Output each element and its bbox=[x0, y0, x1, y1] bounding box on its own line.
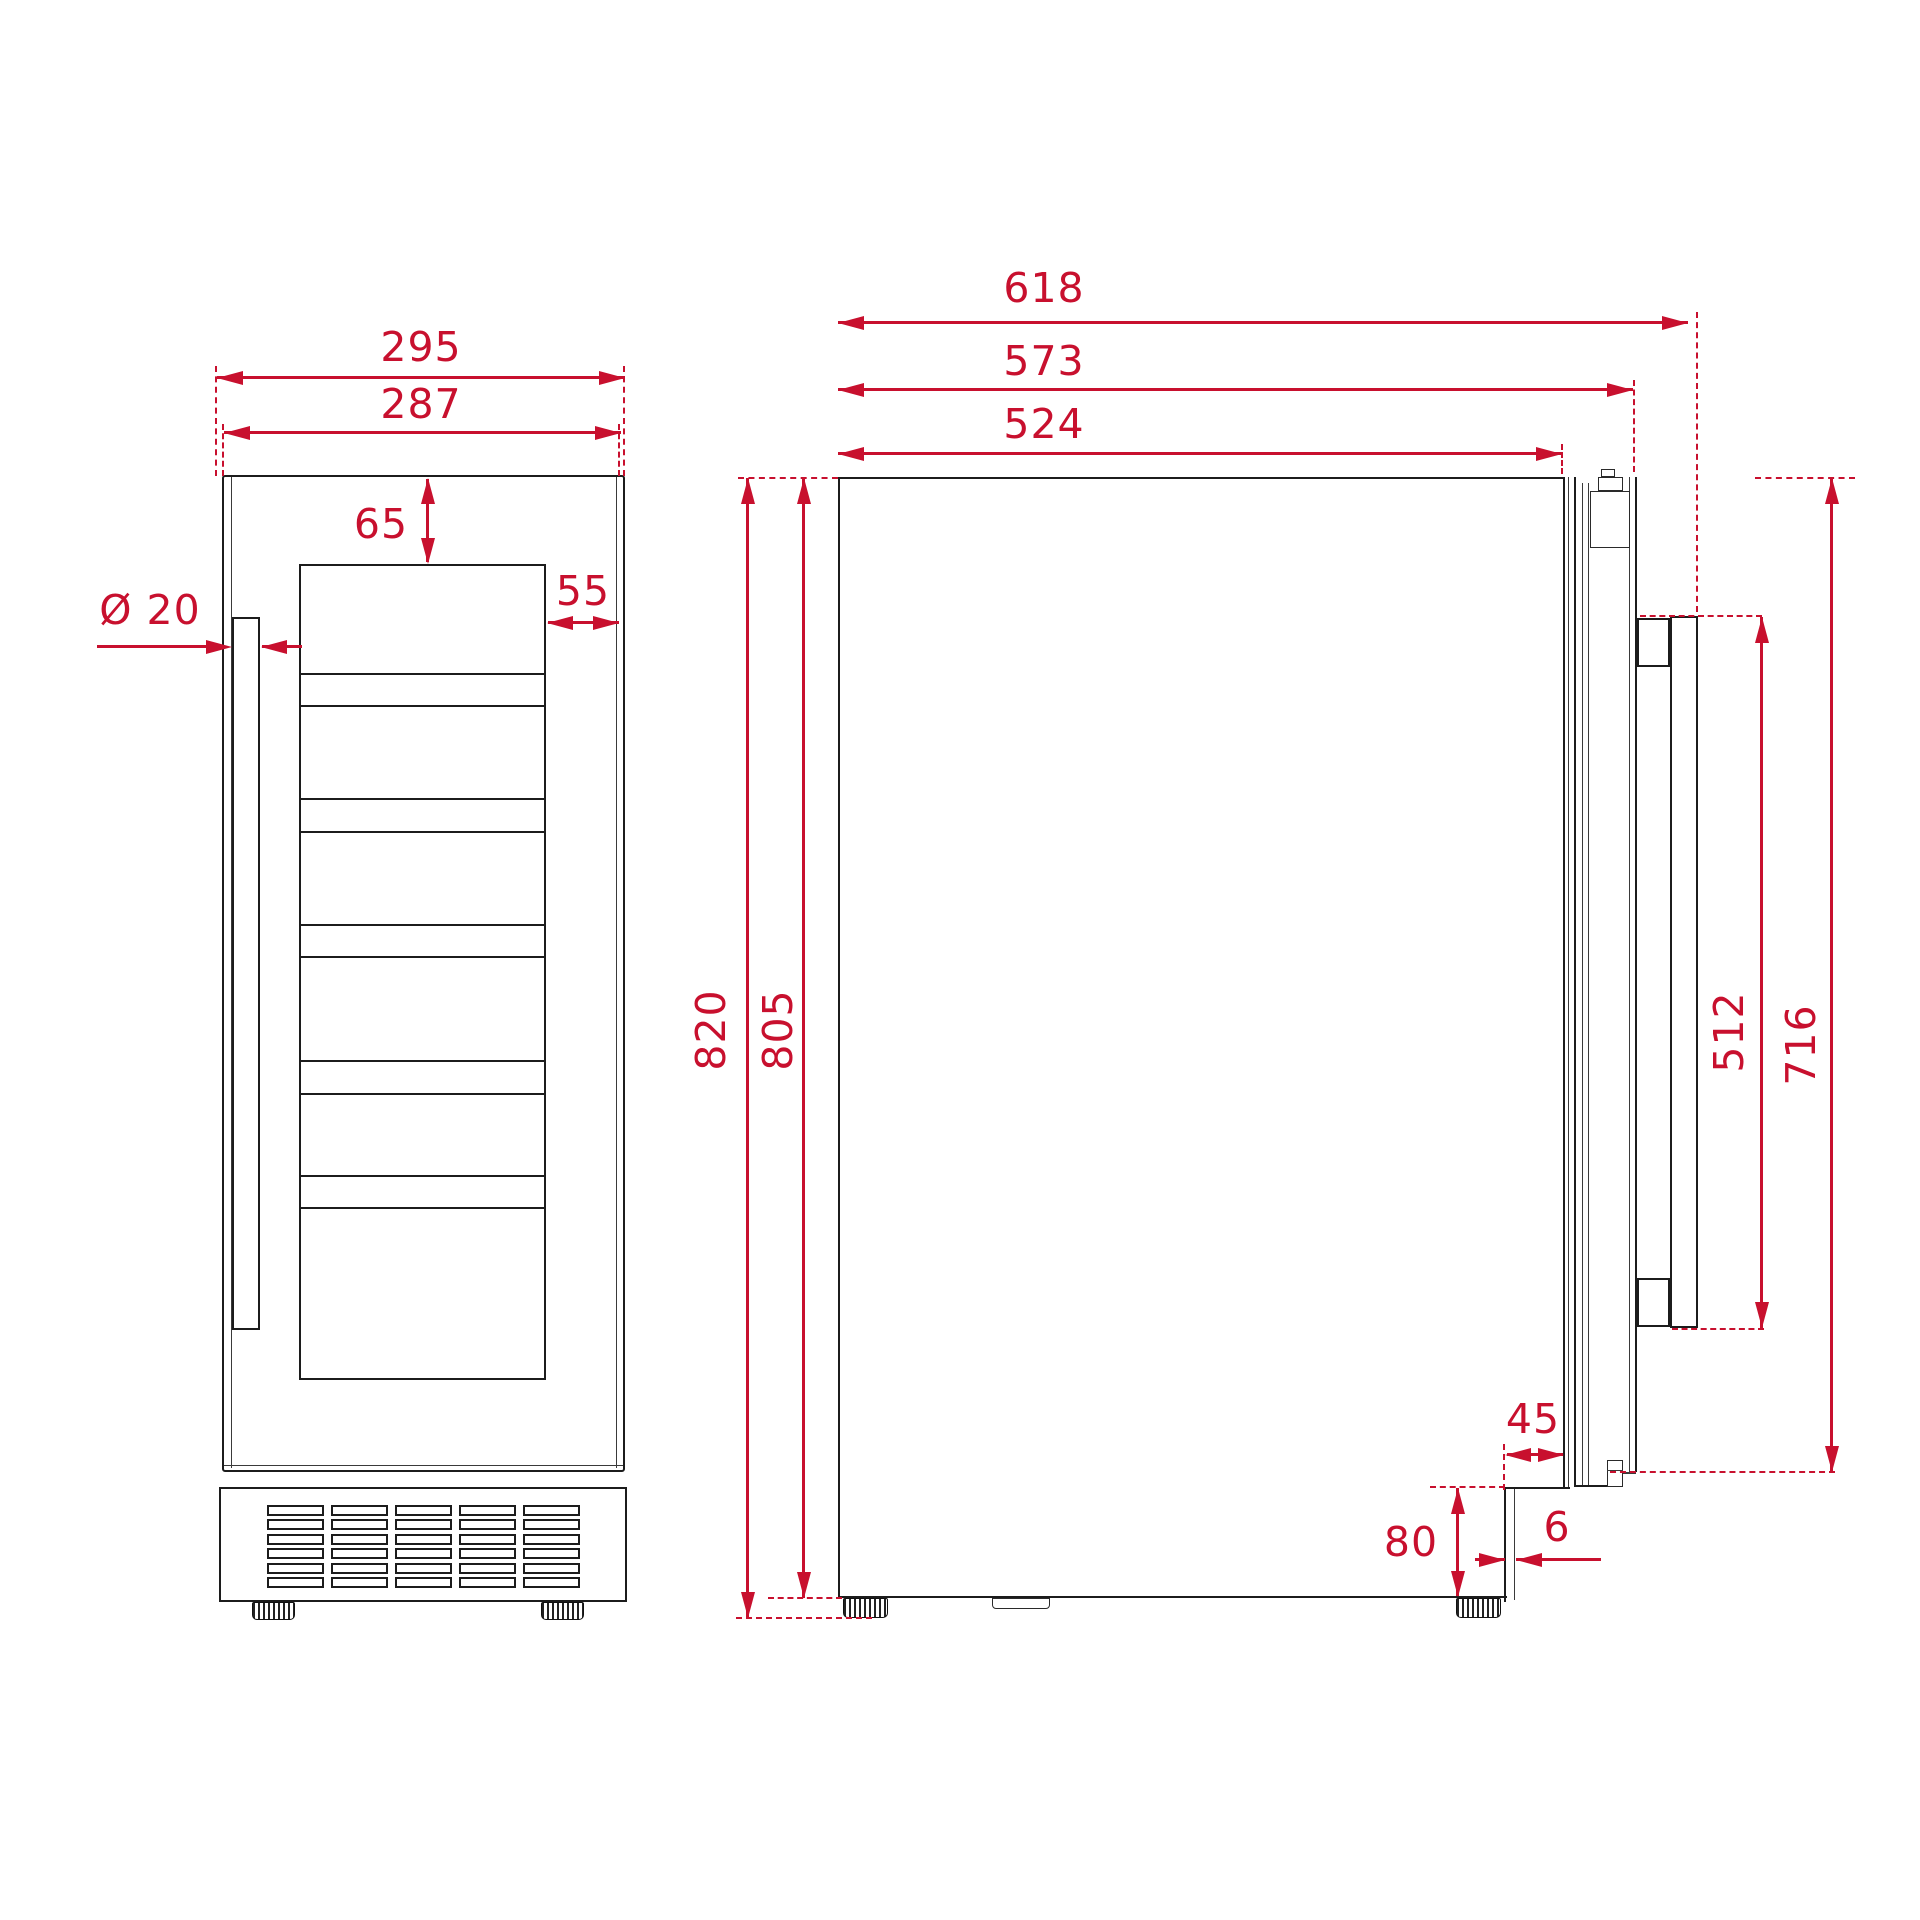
arrow-icon bbox=[421, 478, 435, 504]
dim-label-niche-width: 295 bbox=[380, 323, 461, 371]
arrow-icon bbox=[1755, 1302, 1769, 1328]
door-front-face-inner bbox=[1629, 477, 1630, 1472]
arrow-icon bbox=[838, 447, 864, 461]
dim-label-side-clearance: 55 bbox=[556, 567, 610, 615]
extension-line bbox=[215, 366, 217, 476]
vent-slot bbox=[395, 1563, 452, 1574]
bottom-bracket bbox=[992, 1598, 1050, 1609]
extension-line bbox=[618, 424, 620, 476]
vent-slot bbox=[331, 1577, 388, 1588]
handle-bracket-top bbox=[1637, 618, 1670, 667]
dim-label-door-height: 716 bbox=[1777, 1004, 1825, 1085]
arrow-icon bbox=[1479, 1553, 1505, 1567]
arrow-icon bbox=[1825, 1446, 1839, 1472]
vent-slot bbox=[459, 1534, 516, 1545]
door-handle bbox=[232, 617, 260, 1330]
dim-label-handle-length: 512 bbox=[1705, 991, 1753, 1072]
vent-slot bbox=[523, 1563, 580, 1574]
dim-line-door-height bbox=[1830, 478, 1833, 1472]
shelf bbox=[299, 924, 546, 958]
dim-line-handle-dia bbox=[97, 645, 207, 648]
vent-slot bbox=[267, 1563, 324, 1574]
arrow-icon bbox=[1825, 478, 1839, 504]
dim-line-body-height bbox=[802, 478, 805, 1598]
arrow-icon bbox=[261, 640, 287, 654]
extension-line bbox=[1561, 444, 1563, 474]
dim-line-body-depth bbox=[838, 452, 1562, 455]
shelf bbox=[299, 673, 546, 707]
recess-wall-front bbox=[1504, 1487, 1506, 1602]
vent-slot bbox=[267, 1577, 324, 1588]
dim-label-recess-depth: 45 bbox=[1506, 1395, 1560, 1443]
door-layer-line bbox=[1582, 483, 1583, 1487]
extension-line bbox=[1633, 380, 1635, 472]
vent-slot bbox=[267, 1505, 324, 1516]
vent-slot bbox=[331, 1548, 388, 1559]
extension-line bbox=[736, 1617, 872, 1619]
door-inner-edge-bottom bbox=[224, 1465, 623, 1466]
dim-label-body-height: 805 bbox=[754, 989, 802, 1070]
body-bottom-edge bbox=[838, 1596, 1507, 1598]
handle-bar-side bbox=[1670, 616, 1698, 1328]
vent-slot bbox=[523, 1577, 580, 1588]
dim-line-depth-door bbox=[838, 388, 1633, 391]
dim-label-total-height: 820 bbox=[687, 989, 735, 1070]
shelf bbox=[299, 1060, 546, 1095]
vent-slot bbox=[395, 1505, 452, 1516]
door-bottom-edge bbox=[1576, 1485, 1609, 1487]
dim-label-unit-width: 287 bbox=[380, 380, 461, 428]
door-back-face bbox=[1574, 477, 1576, 1487]
handle-bracket-bottom bbox=[1637, 1278, 1670, 1327]
extension-line bbox=[623, 366, 625, 476]
arrow-icon bbox=[224, 426, 250, 440]
arrow-icon bbox=[1755, 617, 1769, 643]
dim-label-depth-handle: 618 bbox=[1003, 264, 1084, 312]
arrow-icon bbox=[593, 616, 619, 630]
arrow-icon bbox=[217, 371, 243, 385]
vent-slot bbox=[459, 1505, 516, 1516]
vent-slot bbox=[523, 1534, 580, 1545]
extension-line bbox=[1430, 1486, 1505, 1488]
arrow-icon bbox=[1607, 383, 1633, 397]
arrow-icon bbox=[1451, 1488, 1465, 1514]
body-back-edge bbox=[838, 477, 840, 1598]
dimension-drawing: 295 287 65 55 Ø 20 bbox=[0, 0, 1920, 1920]
recess-step-edge bbox=[1504, 1487, 1570, 1489]
hinge-plate bbox=[1598, 477, 1623, 491]
arrow-icon bbox=[741, 478, 755, 504]
arrow-icon bbox=[599, 371, 625, 385]
extension-line bbox=[1755, 477, 1855, 479]
hinge-tab bbox=[1601, 469, 1615, 477]
vent-slot bbox=[331, 1519, 388, 1530]
vent-slot bbox=[267, 1548, 324, 1559]
arrow-icon bbox=[797, 478, 811, 504]
arrow-icon bbox=[838, 383, 864, 397]
dim-line-handle-length bbox=[1760, 617, 1763, 1328]
arrow-icon bbox=[1538, 1448, 1564, 1462]
vent-slot bbox=[267, 1534, 324, 1545]
vent-grille bbox=[219, 1487, 627, 1602]
arrow-icon bbox=[797, 1572, 811, 1598]
body-front-edge2 bbox=[1568, 477, 1569, 1487]
vent-slot bbox=[331, 1505, 388, 1516]
body-front-edge bbox=[1563, 477, 1565, 1487]
arrow-icon bbox=[421, 538, 435, 564]
foot bbox=[541, 1602, 584, 1620]
dim-line-niche-width bbox=[217, 376, 625, 379]
vent-slot bbox=[395, 1548, 452, 1559]
arrow-icon bbox=[838, 316, 864, 330]
shelf bbox=[299, 1175, 546, 1209]
door-layer-line2 bbox=[1588, 483, 1589, 1487]
arrow-icon bbox=[547, 616, 573, 630]
vent-slot bbox=[459, 1563, 516, 1574]
vent-slot bbox=[395, 1534, 452, 1545]
extension-line bbox=[768, 1597, 842, 1599]
arrow-icon bbox=[1516, 1553, 1542, 1567]
extension-line bbox=[1503, 1444, 1505, 1490]
extension-line bbox=[1696, 312, 1698, 612]
vent-slot bbox=[395, 1577, 452, 1588]
hinge-bracket bbox=[1590, 491, 1630, 548]
arrow-icon bbox=[1505, 1448, 1531, 1462]
foot bbox=[843, 1598, 888, 1618]
dim-line-depth-handle bbox=[838, 321, 1688, 324]
dim-line-unit-width bbox=[224, 431, 621, 434]
arrow-icon bbox=[1662, 316, 1688, 330]
vent-slot bbox=[395, 1519, 452, 1530]
dim-label-plinth-height: 80 bbox=[1384, 1518, 1438, 1566]
extension-line bbox=[222, 424, 224, 476]
vent-slot bbox=[459, 1519, 516, 1530]
extension-line bbox=[1640, 615, 1762, 617]
vent-slot bbox=[459, 1577, 516, 1588]
vent-slot bbox=[459, 1548, 516, 1559]
recess-wall-back bbox=[1514, 1487, 1515, 1600]
vent-slot bbox=[331, 1534, 388, 1545]
vent-slot bbox=[523, 1519, 580, 1530]
arrow-icon bbox=[1536, 447, 1562, 461]
dim-label-thickness: 6 bbox=[1543, 1503, 1570, 1551]
vent-slot bbox=[523, 1548, 580, 1559]
arrow-icon bbox=[1451, 1571, 1465, 1597]
door-bottom-step bbox=[1607, 1460, 1623, 1487]
dim-line-total-height bbox=[746, 478, 749, 1618]
vent-slot bbox=[523, 1505, 580, 1516]
arrow-icon bbox=[206, 640, 232, 654]
body-top-edge bbox=[838, 477, 1565, 479]
dim-label-handle-dia: Ø 20 bbox=[99, 586, 200, 634]
dim-label-top-clearance: 65 bbox=[354, 500, 408, 548]
foot bbox=[252, 1602, 295, 1620]
dim-label-body-depth: 524 bbox=[1003, 400, 1084, 448]
vent-slot bbox=[267, 1519, 324, 1530]
vent-slot bbox=[331, 1563, 388, 1574]
extension-line bbox=[1610, 1471, 1835, 1473]
dim-label-depth-door: 573 bbox=[1003, 337, 1084, 385]
extension-line bbox=[1672, 1328, 1764, 1330]
foot bbox=[1456, 1598, 1501, 1618]
shelf bbox=[299, 798, 546, 833]
arrow-icon bbox=[741, 1592, 755, 1618]
